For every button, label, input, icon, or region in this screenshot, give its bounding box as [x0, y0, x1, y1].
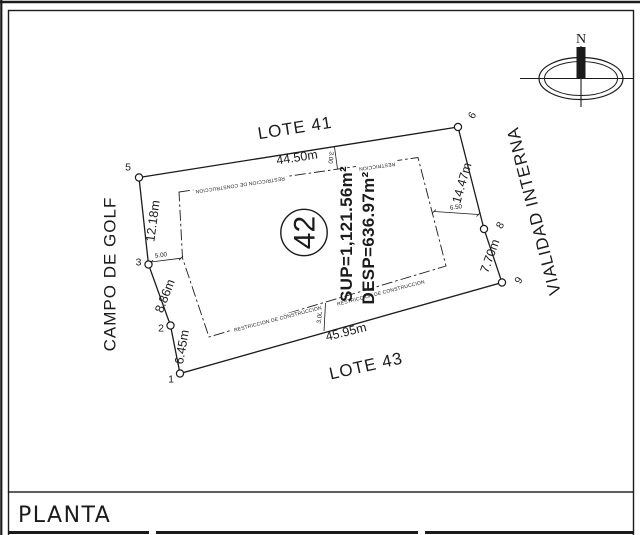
vertex-2-marker	[167, 322, 174, 329]
dim-setback-east: 6.50	[449, 203, 463, 212]
site-plan-canvas: 5 3 2 1 6 8 9 44.50m 45.95m 12.18m 8.86m…	[0, 0, 640, 535]
neighbor-south-label: LOTE 43	[327, 349, 404, 384]
vertex-1-marker	[176, 370, 183, 377]
plan-sheet: 5 3 2 1 6 8 9 44.50m 45.95m 12.18m 8.86m…	[0, 0, 640, 535]
neighbor-east-label: VIALIDAD INTERNA	[503, 125, 565, 297]
vertex-6-marker	[454, 123, 461, 130]
dim-north-edge: 44.50m	[275, 147, 318, 167]
north-arrow-compass: N	[520, 32, 634, 107]
vertex-label-3: 3	[136, 257, 142, 269]
restriction-note-bottom-left: RESTRICCION DE CONSTRUCCION	[232, 304, 325, 335]
vertex-markers	[135, 123, 505, 377]
area-annotations: SUP=1,121.56m² DESP=636.97m²	[337, 166, 378, 305]
vertex-label-6: 6	[466, 110, 479, 121]
lot-number: 42	[289, 216, 322, 249]
vertex-label-9: 9	[512, 275, 525, 286]
lot-number-bubble: 42	[281, 209, 327, 255]
restriction-note-top-left: RESTRICCION DE CONSTRUCCION	[193, 174, 287, 195]
neighbor-west-label: CAMPO DE GOLF	[101, 197, 120, 352]
vertex-label-1: 1	[168, 374, 174, 386]
vertex-8-marker	[480, 225, 487, 232]
restriction-note-text: RESTRICCION DE CONSTRUCCION	[233, 305, 322, 333]
dim-setback-north: 3.00	[326, 151, 335, 165]
dim-setback-west: 5.00	[154, 251, 168, 260]
dim-south-edge: 45.95m	[324, 320, 368, 344]
vertex-label-8: 8	[494, 220, 507, 231]
dim-west-middle: 8.86m	[152, 277, 178, 314]
view-title: PLANTA	[18, 503, 111, 528]
compass-north-label: N	[576, 32, 586, 47]
dim-west-upper: 12.18m	[143, 199, 162, 242]
dim-west-lower: 6.45m	[172, 329, 192, 366]
surface-area-text: SUP=1,121.56m²	[337, 166, 356, 302]
lot-boundary	[139, 127, 502, 374]
dim-east-upper: 14.47m	[450, 161, 475, 205]
vertex-label-5: 5	[125, 162, 131, 174]
clear-area-text: DESP=636.97m²	[359, 172, 378, 305]
compass-needle	[577, 47, 586, 79]
restriction-note-text: RESTRICCION DE CONSTRUCCION	[195, 175, 285, 194]
dim-east-lower: 7.70m	[477, 237, 502, 274]
vertex-3-marker	[145, 261, 152, 268]
restriction-note-top-right: RESTRICCION	[356, 160, 399, 173]
restriction-note-text: RESTRICCION	[358, 160, 395, 171]
vertex-5-marker	[135, 174, 142, 181]
neighbor-north-label: LOTE 41	[256, 113, 333, 144]
vertex-9-marker	[498, 279, 505, 286]
vertex-label-2: 2	[158, 323, 164, 335]
